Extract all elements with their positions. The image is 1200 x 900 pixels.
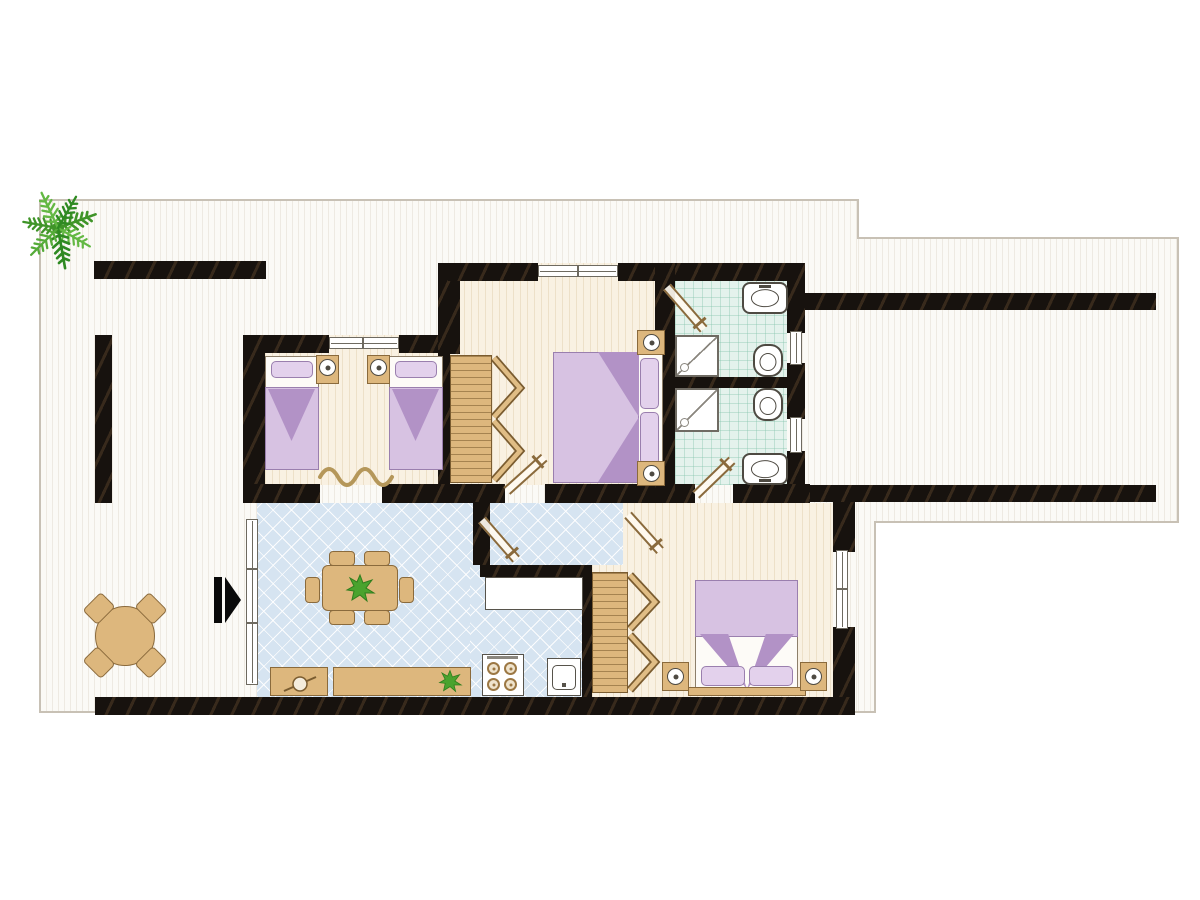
sideboard-decor (284, 677, 316, 691)
sideboard-plant-icon (440, 671, 462, 692)
table-plant-icon (347, 575, 374, 601)
decor-overlay (0, 0, 1200, 900)
plant-tree-icon (22, 190, 98, 270)
wavy-rug (320, 469, 392, 485)
wardrobe-open-doors-master (494, 358, 520, 480)
wardrobe-open-doors-rear (630, 575, 655, 690)
floor-plan (0, 0, 1200, 900)
